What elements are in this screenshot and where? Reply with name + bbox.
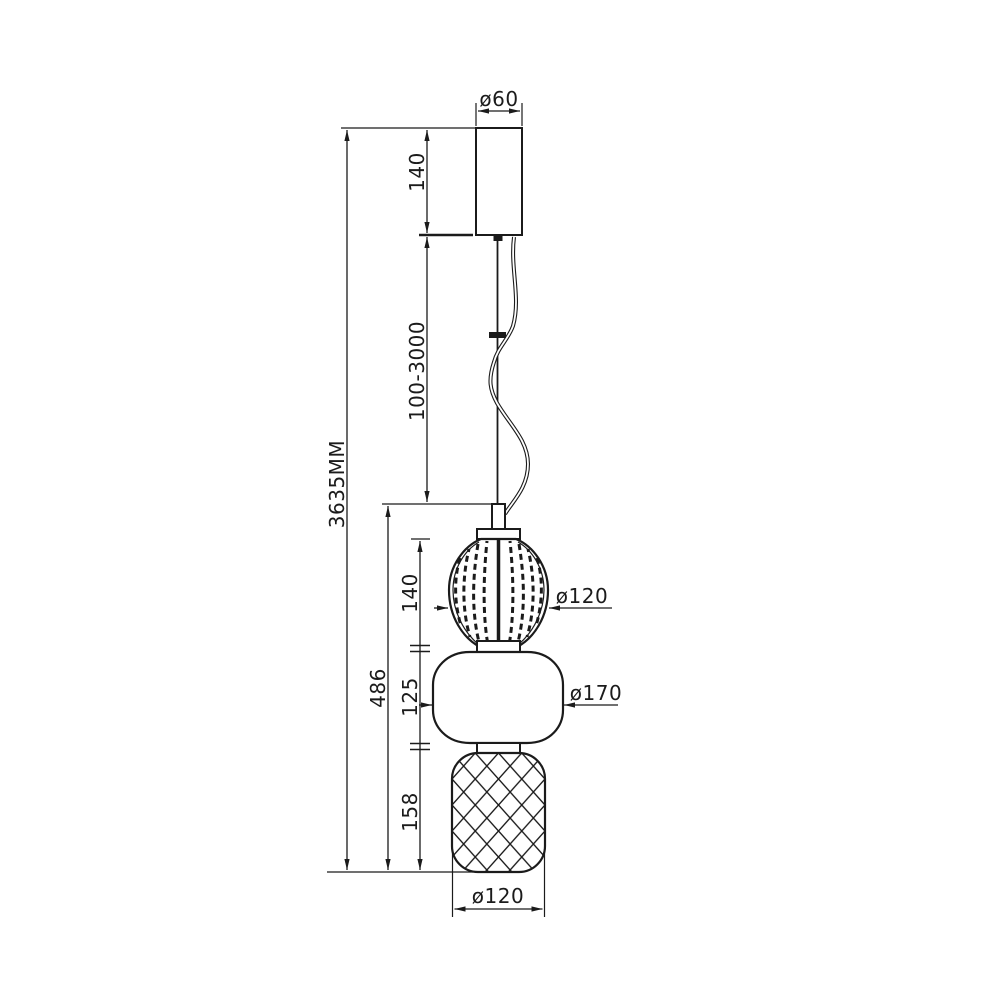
dim-bottom-shade-diameter: ø120: [455, 884, 543, 909]
neck-lower: [477, 743, 520, 753]
dim-canopy-diameter: ø60: [478, 87, 520, 111]
dim-overall-height: 3635MM: [325, 130, 349, 870]
cord-clamp: [489, 332, 506, 338]
pendant-lamp-dimension-drawing: 3635MM 486 140 100-3000 140 125 158 ø60: [0, 0, 1000, 1000]
dim-bottom-shade-diameter-label: ø120: [472, 884, 524, 908]
stem: [492, 504, 505, 530]
rod-gland: [494, 235, 503, 241]
drawing-canvas: 3635MM 486 140 100-3000 140 125 158 ø60: [0, 0, 1000, 1000]
dim-top-shade-diameter-label: ø120: [556, 584, 608, 608]
neck-upper: [477, 641, 520, 652]
dim-middle-shade-diameter-label: ø170: [570, 681, 622, 705]
dim-canopy-height: 140: [405, 130, 429, 233]
dim-top-shade-height-label: 140: [398, 573, 422, 613]
dim-body-height: 486: [366, 506, 390, 870]
top-cap: [477, 529, 520, 539]
power-cord: [490, 237, 528, 514]
ceiling-canopy: [476, 128, 522, 241]
dim-body-height-label: 486: [366, 668, 390, 708]
dim-middle-shade-height-label: 125: [398, 677, 422, 717]
dim-overall-height-label: 3635MM: [325, 440, 349, 528]
dim-bottom-shade-height-label: 158: [398, 792, 422, 832]
dim-cord-length: 100-3000: [405, 237, 429, 502]
middle-shade: [433, 652, 563, 743]
top-shade: [449, 539, 548, 647]
dim-cord-length-label: 100-3000: [405, 321, 429, 421]
dim-canopy-height-label: 140: [405, 152, 429, 192]
bottom-shade: [452, 753, 545, 872]
dim-canopy-diameter-label: ø60: [479, 87, 518, 111]
